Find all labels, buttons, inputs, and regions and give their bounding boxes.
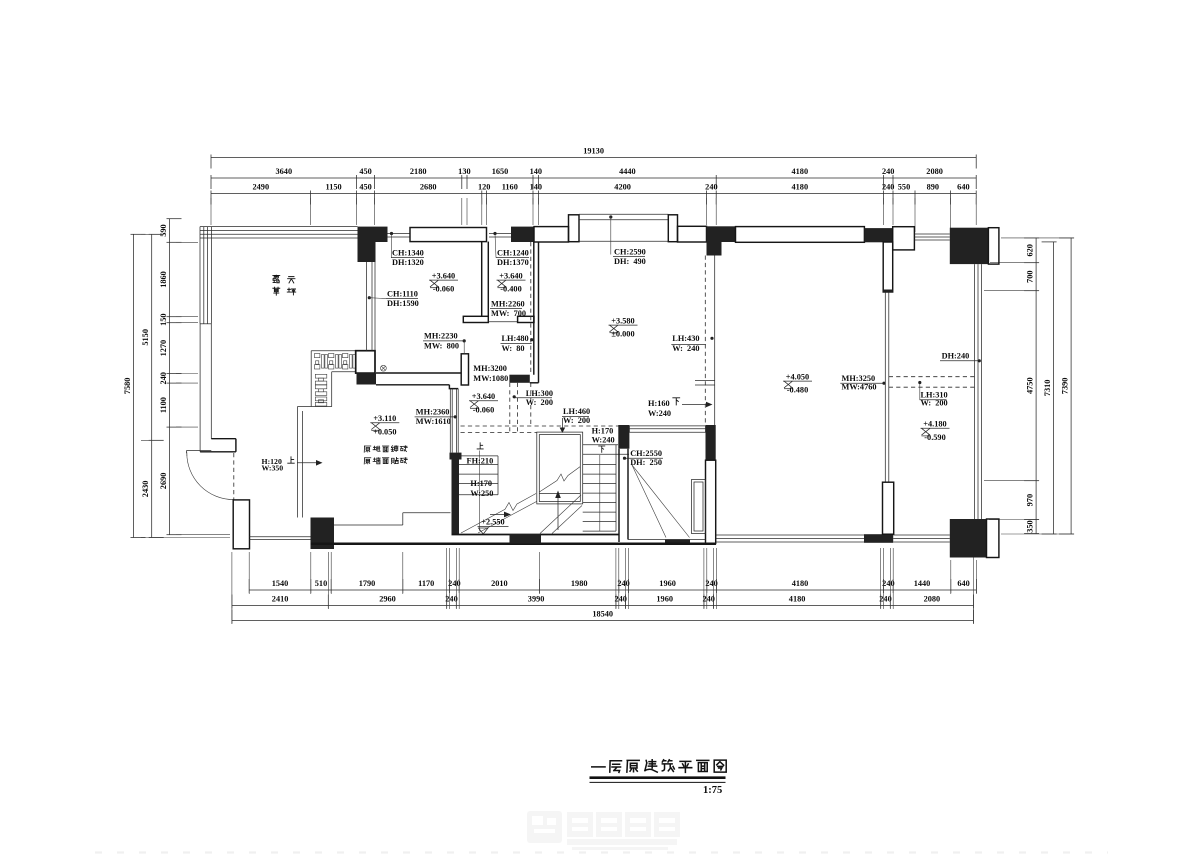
svg-text:2430: 2430 bbox=[141, 481, 150, 498]
svg-text:-0.480: -0.480 bbox=[787, 386, 808, 395]
svg-text:450: 450 bbox=[359, 183, 371, 192]
svg-text:H:170: H:170 bbox=[592, 427, 614, 436]
svg-text:4180: 4180 bbox=[792, 579, 809, 588]
svg-text:2490: 2490 bbox=[253, 183, 270, 192]
svg-text:+2.550: +2.550 bbox=[481, 517, 504, 526]
svg-text:LH:460: LH:460 bbox=[563, 407, 590, 416]
svg-text:DH: 490: DH: 490 bbox=[614, 257, 646, 266]
svg-text:W:350: W:350 bbox=[262, 464, 284, 473]
svg-text:240: 240 bbox=[445, 595, 457, 604]
svg-text:140: 140 bbox=[530, 183, 542, 192]
svg-text:450: 450 bbox=[359, 167, 371, 176]
svg-text:2410: 2410 bbox=[272, 595, 289, 604]
svg-text:LH:300: LH:300 bbox=[526, 389, 553, 398]
svg-text:19130: 19130 bbox=[583, 147, 604, 156]
svg-text:-0.060: -0.060 bbox=[473, 405, 494, 414]
svg-text:2680: 2680 bbox=[420, 183, 437, 192]
svg-text:LH:480: LH:480 bbox=[502, 334, 529, 343]
svg-text:+3.110: +3.110 bbox=[373, 414, 396, 423]
svg-text:MW:1610: MW:1610 bbox=[416, 417, 451, 426]
svg-text:H:160: H:160 bbox=[648, 399, 670, 408]
svg-text:240: 240 bbox=[882, 579, 894, 588]
svg-text:4440: 4440 bbox=[619, 167, 636, 176]
svg-text:CH:1240: CH:1240 bbox=[497, 248, 529, 257]
svg-text:+4.050: +4.050 bbox=[786, 372, 809, 381]
svg-text:W: 80: W: 80 bbox=[502, 344, 525, 353]
svg-text:CH:1110: CH:1110 bbox=[387, 289, 418, 298]
svg-text:MH:2360: MH:2360 bbox=[416, 408, 450, 417]
svg-text:2080: 2080 bbox=[926, 167, 943, 176]
svg-text:+4.180: +4.180 bbox=[923, 420, 946, 429]
svg-text:1150: 1150 bbox=[326, 183, 342, 192]
svg-text:1960: 1960 bbox=[656, 595, 673, 604]
svg-text:1860: 1860 bbox=[159, 271, 168, 288]
svg-text:890: 890 bbox=[927, 183, 939, 192]
svg-text:+0.050: +0.050 bbox=[373, 427, 396, 436]
svg-text:DH:240: DH:240 bbox=[942, 352, 970, 361]
svg-text:240: 240 bbox=[448, 579, 460, 588]
svg-text:140: 140 bbox=[530, 167, 542, 176]
svg-text:CH:2590: CH:2590 bbox=[614, 247, 646, 256]
svg-text:-0.590: -0.590 bbox=[924, 433, 945, 442]
svg-text:510: 510 bbox=[315, 579, 327, 588]
svg-text:590: 590 bbox=[159, 224, 168, 236]
svg-text:5150: 5150 bbox=[141, 329, 150, 346]
svg-text:1160: 1160 bbox=[502, 183, 518, 192]
svg-text:240: 240 bbox=[617, 579, 629, 588]
svg-text:DH:1590: DH:1590 bbox=[387, 299, 419, 308]
svg-text:7580: 7580 bbox=[123, 378, 132, 395]
svg-text:4200: 4200 bbox=[614, 183, 631, 192]
svg-text:4180: 4180 bbox=[792, 183, 809, 192]
svg-text:4750: 4750 bbox=[1026, 377, 1035, 394]
svg-text:4180: 4180 bbox=[789, 595, 806, 604]
svg-text:1980: 1980 bbox=[571, 579, 588, 588]
svg-text:MW:4760: MW:4760 bbox=[842, 382, 877, 391]
svg-text:240: 240 bbox=[705, 579, 717, 588]
svg-text:MH:2260: MH:2260 bbox=[491, 299, 525, 308]
svg-text:MW:1080: MW:1080 bbox=[473, 374, 508, 383]
svg-text:LH:430: LH:430 bbox=[672, 334, 699, 343]
svg-text:3990: 3990 bbox=[528, 595, 545, 604]
svg-text:W: 200: W: 200 bbox=[921, 398, 948, 407]
svg-text:2180: 2180 bbox=[410, 167, 427, 176]
svg-text:2010: 2010 bbox=[491, 579, 508, 588]
svg-text:FH:210: FH:210 bbox=[467, 456, 494, 465]
svg-text:-0.400: -0.400 bbox=[500, 285, 521, 294]
svg-text:1170: 1170 bbox=[418, 579, 434, 588]
svg-text:W: 240: W: 240 bbox=[672, 344, 699, 353]
svg-text:H:170: H:170 bbox=[470, 479, 492, 488]
svg-text:120: 120 bbox=[478, 183, 490, 192]
svg-text:1270: 1270 bbox=[159, 340, 168, 357]
svg-text:DH: 250: DH: 250 bbox=[630, 458, 662, 467]
svg-text:1650: 1650 bbox=[492, 167, 509, 176]
svg-text:DH:1370: DH:1370 bbox=[497, 258, 529, 267]
svg-text:130: 130 bbox=[458, 167, 470, 176]
svg-text:W:240: W:240 bbox=[648, 409, 671, 418]
svg-text:±0.000: ±0.000 bbox=[611, 330, 634, 339]
svg-text:240: 240 bbox=[879, 595, 891, 604]
svg-text:W: 200: W: 200 bbox=[526, 398, 553, 407]
svg-text:7390: 7390 bbox=[1061, 378, 1070, 395]
svg-text:350: 350 bbox=[1026, 520, 1035, 532]
svg-text:240: 240 bbox=[614, 595, 626, 604]
svg-text:MW: 800: MW: 800 bbox=[424, 342, 459, 351]
svg-text:240: 240 bbox=[702, 595, 714, 604]
svg-text:550: 550 bbox=[898, 183, 910, 192]
svg-text:150: 150 bbox=[159, 313, 168, 325]
svg-text:1100: 1100 bbox=[159, 397, 168, 413]
svg-text:18540: 18540 bbox=[592, 610, 613, 619]
svg-text:1440: 1440 bbox=[914, 579, 931, 588]
svg-text:2690: 2690 bbox=[159, 473, 168, 490]
svg-text:240: 240 bbox=[159, 372, 168, 384]
svg-text:CH:1340: CH:1340 bbox=[392, 248, 424, 257]
svg-text:2080: 2080 bbox=[924, 595, 941, 604]
svg-text:1790: 1790 bbox=[359, 579, 376, 588]
svg-text:+3.580: +3.580 bbox=[611, 316, 634, 325]
svg-text:970: 970 bbox=[1026, 494, 1035, 506]
svg-text:DH:1320: DH:1320 bbox=[392, 258, 424, 267]
svg-text:MW: 700: MW: 700 bbox=[491, 309, 526, 318]
svg-text:W:240: W:240 bbox=[592, 436, 615, 445]
svg-text:1:75: 1:75 bbox=[703, 785, 722, 796]
svg-text:W:250: W:250 bbox=[470, 489, 493, 498]
svg-text:240: 240 bbox=[882, 183, 894, 192]
svg-text:+3.640: +3.640 bbox=[499, 271, 522, 280]
svg-text:MH:3200: MH:3200 bbox=[473, 364, 507, 373]
svg-text:CH:2550: CH:2550 bbox=[630, 449, 662, 458]
svg-text:240: 240 bbox=[882, 167, 894, 176]
svg-text:1540: 1540 bbox=[272, 579, 289, 588]
svg-text:MH:2230: MH:2230 bbox=[424, 332, 458, 341]
svg-text:-0.060: -0.060 bbox=[433, 285, 454, 294]
svg-text:640: 640 bbox=[957, 183, 969, 192]
svg-text:7310: 7310 bbox=[1043, 380, 1052, 397]
svg-text:240: 240 bbox=[705, 183, 717, 192]
svg-text:620: 620 bbox=[1026, 244, 1035, 256]
svg-text:+3.640: +3.640 bbox=[472, 392, 495, 401]
svg-text:2960: 2960 bbox=[379, 595, 396, 604]
svg-text:W: 200: W: 200 bbox=[563, 416, 590, 425]
svg-text:4180: 4180 bbox=[792, 167, 809, 176]
svg-text:+3.640: +3.640 bbox=[432, 271, 455, 280]
svg-text:1960: 1960 bbox=[659, 579, 676, 588]
svg-text:700: 700 bbox=[1026, 270, 1035, 282]
svg-text:3640: 3640 bbox=[276, 167, 293, 176]
svg-text:640: 640 bbox=[957, 579, 969, 588]
